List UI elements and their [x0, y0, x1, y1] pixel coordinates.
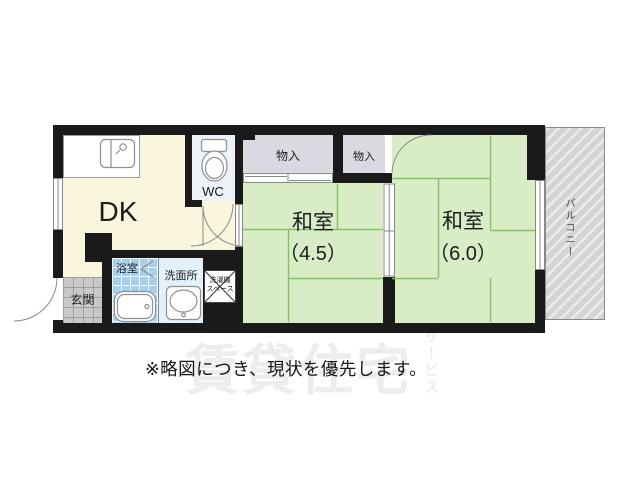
door-arc-entrance — [14, 278, 57, 321]
doorway-gap — [385, 135, 392, 173]
closet-left-label: 物入 — [243, 147, 333, 164]
washroom-label: 洗面所 — [159, 267, 203, 283]
wall-segment — [53, 323, 545, 333]
wall-segment — [383, 277, 395, 323]
wall-segment — [527, 125, 545, 180]
entrance-door-gap — [53, 278, 63, 320]
wall-pillar — [236, 125, 255, 140]
wall-pillar — [85, 233, 112, 262]
laundry-label-line1: 洗濯機 — [204, 277, 236, 286]
floor-plan-page: 賃貸住宅 サービス バルコニー — [0, 0, 640, 480]
closet-right-label: 物入 — [343, 148, 385, 164]
kitchen-counter — [63, 135, 140, 178]
wc-label: WC — [196, 184, 230, 199]
washitsu-small-size: （4.5） — [253, 237, 373, 266]
washitsu-large-name: 和室 — [403, 205, 523, 235]
laundry-label: 洗濯機 スペース — [204, 277, 236, 294]
genkan-label: 玄関 — [63, 291, 102, 308]
wall-segment — [185, 200, 202, 207]
wall-segment — [333, 173, 392, 183]
wall-segment — [53, 320, 63, 333]
wall-segment — [53, 230, 63, 278]
wall-segment — [102, 262, 112, 323]
closet-sliding-door-icon — [244, 174, 333, 183]
wall-segment — [535, 270, 545, 323]
wall-segment — [53, 125, 63, 178]
dk-label: DK — [92, 196, 144, 228]
closet-sliding-door-icon — [245, 174, 331, 182]
washitsu-large-size: （6.0） — [403, 237, 523, 266]
window-right-icon — [536, 181, 545, 270]
disclaimer-note: ※略図につき、現状を優先します。 — [145, 356, 427, 381]
window-left-icon — [54, 179, 63, 230]
bath-label: 浴室 — [116, 260, 138, 276]
wall-segment — [185, 133, 192, 201]
wall-segment — [112, 250, 243, 258]
laundry-label-line2: スペース — [204, 286, 236, 295]
washitsu-small-name: 和室 — [253, 206, 373, 236]
wall-segment — [53, 125, 545, 135]
balcony-label: バルコニー — [561, 198, 576, 258]
